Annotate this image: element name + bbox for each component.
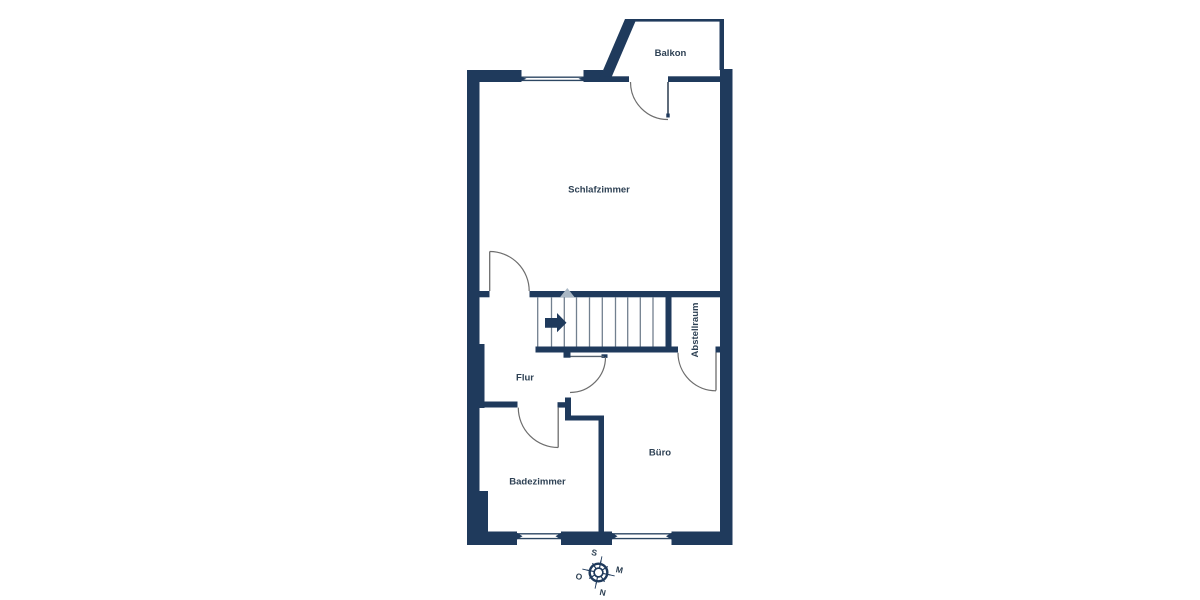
svg-text:Schlafzimmer: Schlafzimmer	[568, 184, 630, 195]
svg-text:Abstellraum: Abstellraum	[690, 303, 701, 358]
svg-text:Balkon: Balkon	[655, 48, 687, 59]
svg-text:Büro: Büro	[649, 447, 671, 458]
svg-text:Badezimmer: Badezimmer	[509, 476, 566, 487]
svg-text:Flur: Flur	[516, 372, 534, 383]
